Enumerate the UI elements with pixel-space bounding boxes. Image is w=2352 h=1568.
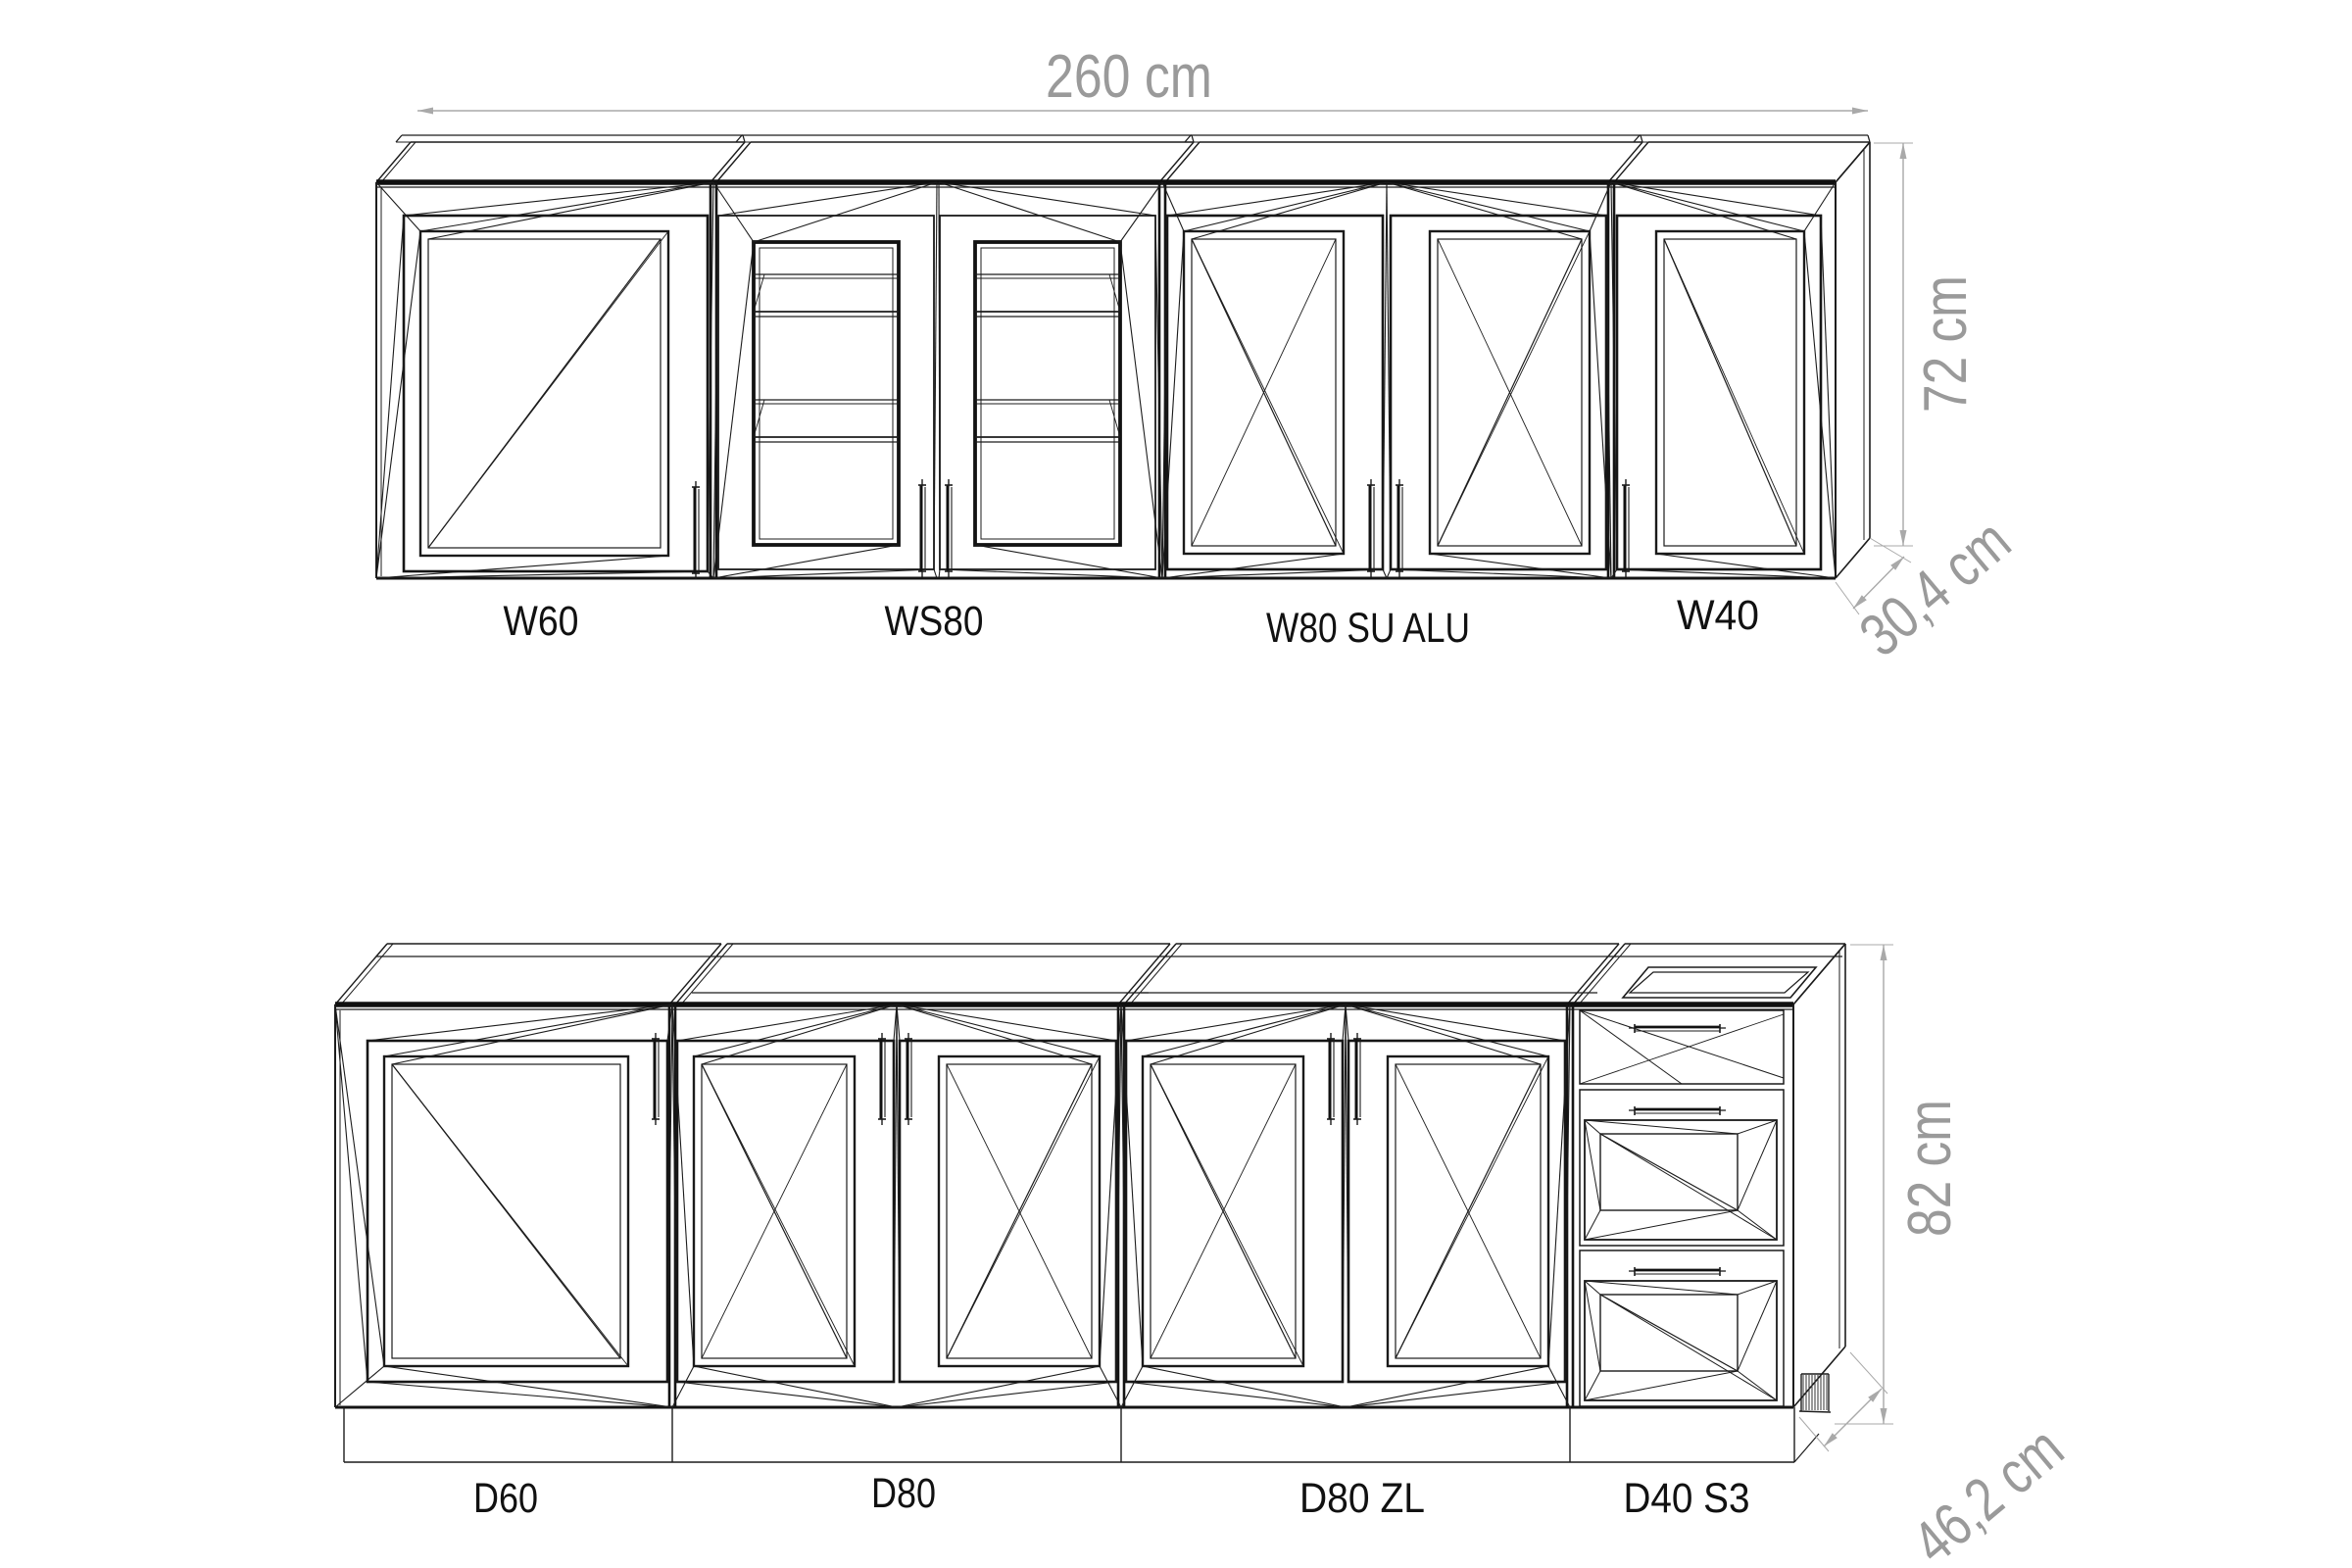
svg-text:D60: D60 bbox=[473, 1475, 538, 1522]
svg-text:W60: W60 bbox=[504, 598, 579, 645]
svg-text:D40 S3: D40 S3 bbox=[1624, 1475, 1750, 1522]
svg-text:260 cm: 260 cm bbox=[1046, 43, 1212, 111]
svg-text:D80 ZL: D80 ZL bbox=[1299, 1475, 1425, 1522]
svg-text:D80: D80 bbox=[871, 1470, 936, 1517]
svg-text:72 cm: 72 cm bbox=[1912, 275, 1980, 413]
svg-text:W40: W40 bbox=[1677, 592, 1759, 639]
svg-text:WS80: WS80 bbox=[885, 598, 984, 645]
svg-text:82 cm: 82 cm bbox=[1896, 1100, 1964, 1237]
svg-text:W80 SU ALU: W80 SU ALU bbox=[1266, 605, 1470, 652]
